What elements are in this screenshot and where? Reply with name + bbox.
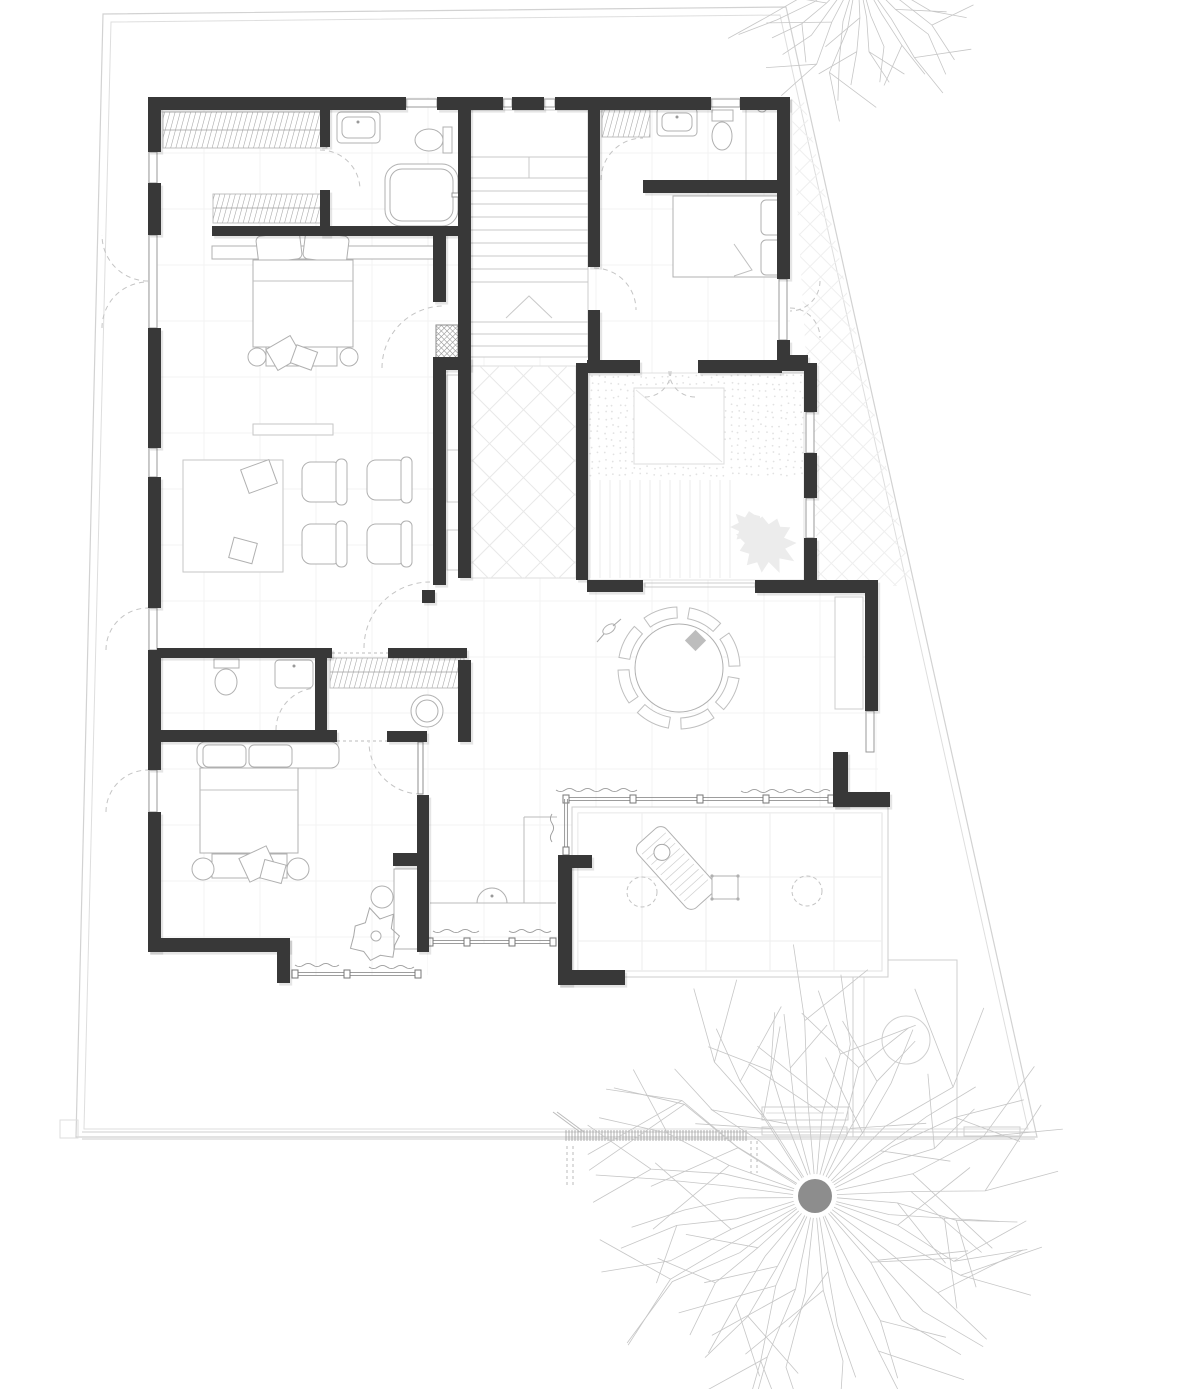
wall: [148, 183, 161, 235]
sink-tap: [357, 121, 360, 124]
door-swing: [790, 281, 820, 311]
wall: [587, 580, 643, 592]
toilet-bowl: [415, 129, 443, 151]
toilet-tank: [712, 110, 733, 121]
pillow: [249, 745, 292, 767]
sink-tap: [293, 665, 296, 668]
wall: [804, 363, 817, 412]
wall: [320, 98, 330, 147]
wall: [148, 938, 290, 952]
mullion: [630, 795, 636, 803]
window: [806, 498, 814, 538]
wall: [558, 970, 625, 985]
armchair-back: [336, 521, 347, 567]
terrace-table: [712, 876, 738, 899]
window: [711, 99, 740, 107]
wall: [148, 650, 161, 770]
garden: [60, 960, 1035, 1231]
window: [779, 279, 787, 340]
desk-chair: [371, 886, 393, 908]
wall: [512, 97, 544, 110]
sink: [275, 660, 313, 688]
door-swing: [106, 770, 148, 812]
wall: [393, 853, 417, 866]
table-leg: [710, 897, 713, 900]
wall: [148, 97, 161, 152]
tree-branches: [588, 945, 1063, 1389]
tree-large: [588, 945, 1063, 1389]
wall: [865, 593, 878, 711]
wall: [387, 731, 427, 742]
pillow: [203, 745, 246, 767]
door-leaf: [418, 742, 423, 794]
mullion: [509, 938, 515, 946]
bed-third: [200, 768, 298, 853]
kitchen-tap: [491, 895, 494, 898]
boundary-jog: [60, 1120, 78, 1138]
sideboard: [835, 597, 863, 709]
wall: [755, 580, 878, 593]
table-leg: [736, 874, 739, 877]
wall: [558, 855, 572, 985]
shelf: [447, 530, 459, 570]
mullion: [415, 970, 421, 978]
wall: [804, 538, 817, 585]
door-swing: [102, 282, 148, 328]
wall: [587, 360, 640, 373]
wall: [148, 812, 161, 952]
small-tree: [882, 1016, 930, 1064]
wall: [643, 180, 783, 193]
stair-well: [470, 110, 588, 357]
window: [806, 412, 814, 453]
foyer-floor: [471, 366, 576, 578]
toilet-bowl: [215, 669, 237, 695]
wall: [588, 97, 600, 267]
mullion: [464, 938, 470, 946]
bathtub-inner: [390, 169, 453, 221]
window: [149, 770, 157, 812]
armchair-back: [401, 521, 412, 567]
window: [866, 711, 874, 752]
side-table: [340, 348, 358, 366]
wall: [148, 477, 161, 608]
wall: [833, 792, 890, 807]
wall: [422, 590, 435, 603]
mullion: [563, 795, 569, 803]
side-table: [287, 858, 309, 880]
mullion: [563, 847, 569, 855]
console: [253, 424, 333, 435]
wall: [433, 227, 446, 302]
toilet-bowl: [712, 122, 732, 150]
round-tub-inner: [416, 700, 438, 722]
sink-tap: [676, 116, 679, 119]
door-swing: [790, 308, 820, 338]
window: [149, 235, 157, 328]
wall: [458, 97, 471, 578]
wall: [576, 363, 588, 580]
door-swing: [106, 608, 148, 650]
side-table: [248, 348, 266, 366]
wall: [698, 360, 782, 373]
floor-plan-canvas: [0, 0, 1200, 1389]
table-leg: [710, 874, 713, 877]
wall: [277, 938, 290, 983]
wall: [315, 648, 327, 732]
sink-basin: [342, 117, 375, 138]
table-leg: [736, 897, 739, 900]
mullion: [344, 970, 350, 978]
wall: [417, 795, 429, 952]
wall: [157, 648, 332, 658]
wall: [212, 226, 458, 236]
mullion: [697, 795, 703, 803]
toilet-tank: [443, 127, 452, 153]
wall: [458, 660, 471, 742]
dining-table: [635, 624, 723, 712]
wall: [148, 328, 161, 448]
door-swing: [102, 235, 148, 281]
window: [149, 152, 157, 183]
wall: [388, 648, 467, 658]
floor-plan-page: [0, 0, 1200, 1389]
wardrobe: [602, 110, 650, 137]
plant-pot: [371, 931, 381, 941]
window: [406, 99, 437, 107]
wall: [433, 357, 471, 370]
mullion: [763, 795, 769, 803]
stairs: [470, 110, 588, 357]
wall: [433, 368, 446, 585]
tree-trunk: [798, 1179, 832, 1213]
desk: [394, 869, 418, 949]
shelf: [447, 450, 459, 502]
wall: [588, 310, 600, 363]
wall: [555, 97, 711, 110]
wall: [148, 730, 337, 742]
wall: [804, 453, 817, 498]
armchair-back: [401, 457, 412, 503]
window: [149, 608, 157, 650]
bed-master: [253, 260, 353, 347]
wall: [148, 97, 406, 110]
window: [149, 448, 157, 477]
side-table: [192, 858, 214, 880]
mullion: [292, 970, 298, 978]
armchair-back: [336, 459, 347, 505]
mullion: [550, 938, 556, 946]
